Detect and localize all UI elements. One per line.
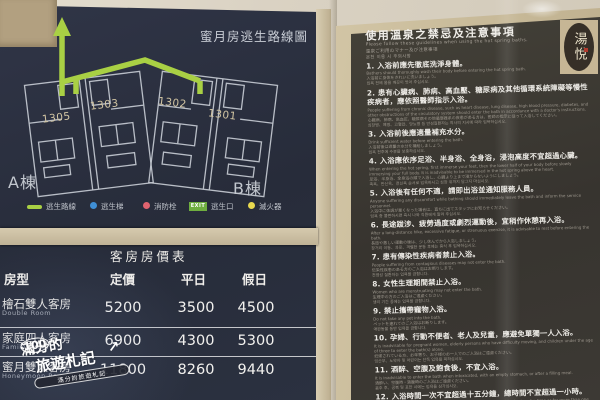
rule-item-7: 7. 患有傳染性疾病者禁止入浴。 People suffering from c… xyxy=(371,247,593,278)
legend-stair-dot-icon xyxy=(90,202,97,209)
legend-label-exit: 逃生口 xyxy=(211,201,234,212)
price-cell: 9440 xyxy=(228,362,284,378)
building-a-label: A棟 xyxy=(8,169,37,193)
glass-glare xyxy=(494,0,520,400)
legend-exit-box-icon: EXIT xyxy=(189,202,207,211)
legend-label-escape-route: 逃生路線 xyxy=(46,201,76,212)
legend-extinguisher-dot-icon xyxy=(248,202,255,209)
rule-item-1: 1. 入浴前應先徹底洗淨身體。 Bathers should thoroughl… xyxy=(366,55,588,86)
escape-route-line xyxy=(62,34,200,96)
rules-list: 1. 入浴前應先徹底洗淨身體。 Bathers should thoroughl… xyxy=(366,55,597,400)
rule-item-6: 6. 長途跋涉、疲勞過度或劇烈運動後，宜稍作休憩再入浴。 After a lon… xyxy=(371,215,593,251)
glare-spot xyxy=(522,0,562,18)
price-cell: 5300 xyxy=(228,333,284,349)
rule-item-5: 5. 入浴後有任何不適，請即出浴並通知服務人員。 Anyone sufferin… xyxy=(370,183,592,219)
legend-label-escape-stair: 逃生梯 xyxy=(101,201,124,212)
price-cell: 4500 xyxy=(228,300,284,316)
building-b-label: B棟 xyxy=(233,175,262,199)
rule-item-9: 9. 禁止攜帶寵物入浴。 Do not take any pet into th… xyxy=(373,301,595,332)
rule-item-4: 4. 入浴應依序足浴、半身浴、全身浴，浸泡高度不宜超過心臟。 When ente… xyxy=(369,151,591,187)
rule-item-2: 2. 患有心臟病、肺病、高血壓、糖尿病及其他循環系統障礙等慢性疾病者，應依照醫師… xyxy=(367,82,589,127)
watermark-arrow-icon: ↗ xyxy=(107,339,121,357)
floor-plan-map xyxy=(0,8,318,208)
legend-label-fire-hydrant: 消防栓 xyxy=(154,201,177,212)
rule-item-3: 3. 入浴前後應適量補充水分。 Drink sufficient water b… xyxy=(368,124,590,155)
rule-item-8: 8. 女性生理期間禁止入浴。 Women who are menstruatin… xyxy=(372,274,594,305)
price-header-holiday: 假日 xyxy=(242,269,267,288)
legend-route-line-icon xyxy=(27,205,42,209)
rule-item-11: 11. 酒醉、空腹及飽食後，不宜入浴。 It is inadvisable to… xyxy=(375,360,597,391)
rules-content: 使用溫泉之禁忌及注意事項 Please follow these guideli… xyxy=(352,17,600,400)
hot-spring-rules-sign: 湯悅 使用溫泉之禁忌及注意事項 Please follow these guid… xyxy=(336,0,600,400)
rule-item-10: 10. 孕婦、行動不便者、老人及兒童，應避免單獨一人入浴。 It is inad… xyxy=(374,328,596,364)
wing-a-floorplan xyxy=(24,71,153,196)
photo-scene: 蜜月房逃生路線圖 xyxy=(0,0,600,400)
legend-label-extinguisher: 滅火器 xyxy=(259,201,282,212)
legend-hydrant-dot-icon xyxy=(143,202,150,209)
escape-route-arrow-icon xyxy=(53,17,71,36)
